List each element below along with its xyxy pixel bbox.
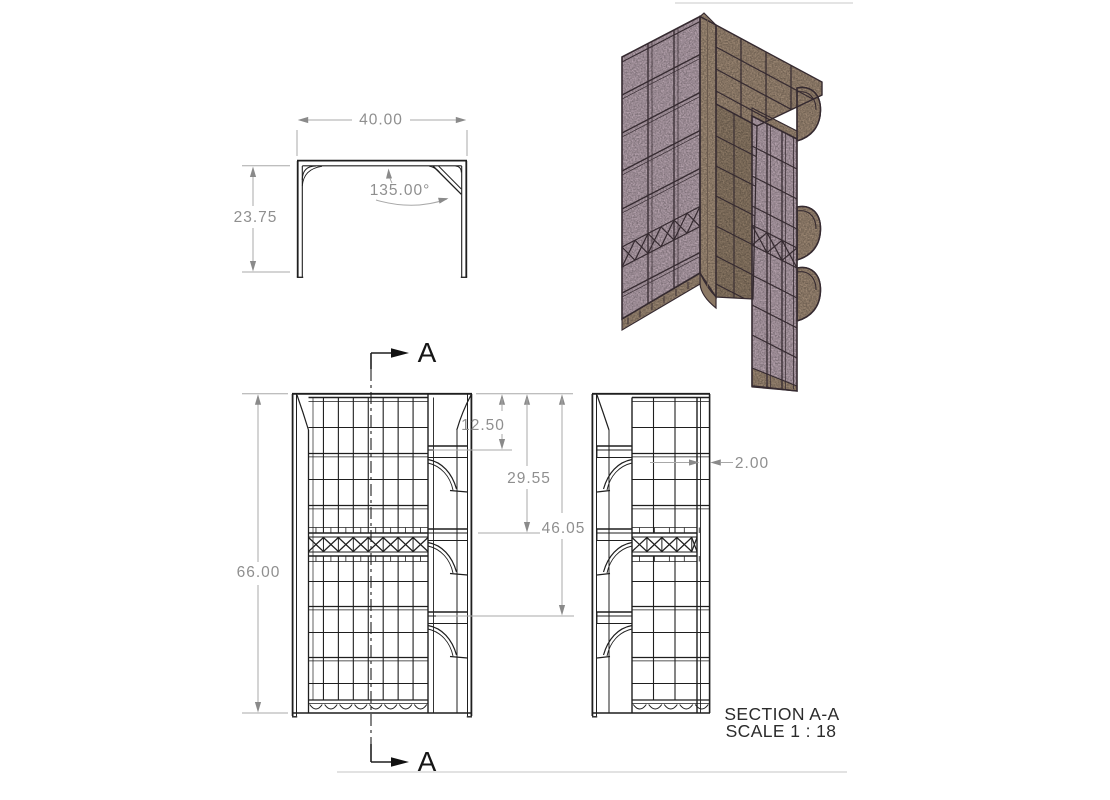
- top-view: [242, 117, 467, 277]
- dim-front-offset1-label: 12.50: [461, 417, 505, 434]
- dim-front-offset2-label: 29.55: [507, 470, 551, 487]
- drawing-sheet: 40.00 23.75 135.00° 66.00 12.50 29.55 46…: [0, 0, 1110, 800]
- dim-section-thickness-label: 2.00: [735, 455, 769, 472]
- dim-front-height-label: 66.00: [237, 564, 281, 581]
- isometric-view: [615, 0, 830, 405]
- section-marker-top-label: A: [418, 337, 437, 368]
- section-view: [592, 394, 733, 717]
- section-caption-scale: SCALE 1 : 18: [726, 721, 837, 741]
- drawing-canvas: 40.00 23.75 135.00° 66.00 12.50 29.55 46…: [0, 0, 1110, 800]
- dim-top-width-label: 40.00: [359, 112, 403, 129]
- front-view: [242, 348, 574, 766]
- section-marker-bottom-label: A: [418, 746, 437, 777]
- dim-top-angle-label: 135.00°: [370, 182, 431, 199]
- dim-front-offset3-label: 46.05: [542, 520, 586, 537]
- dim-top-height-label: 23.75: [234, 209, 278, 226]
